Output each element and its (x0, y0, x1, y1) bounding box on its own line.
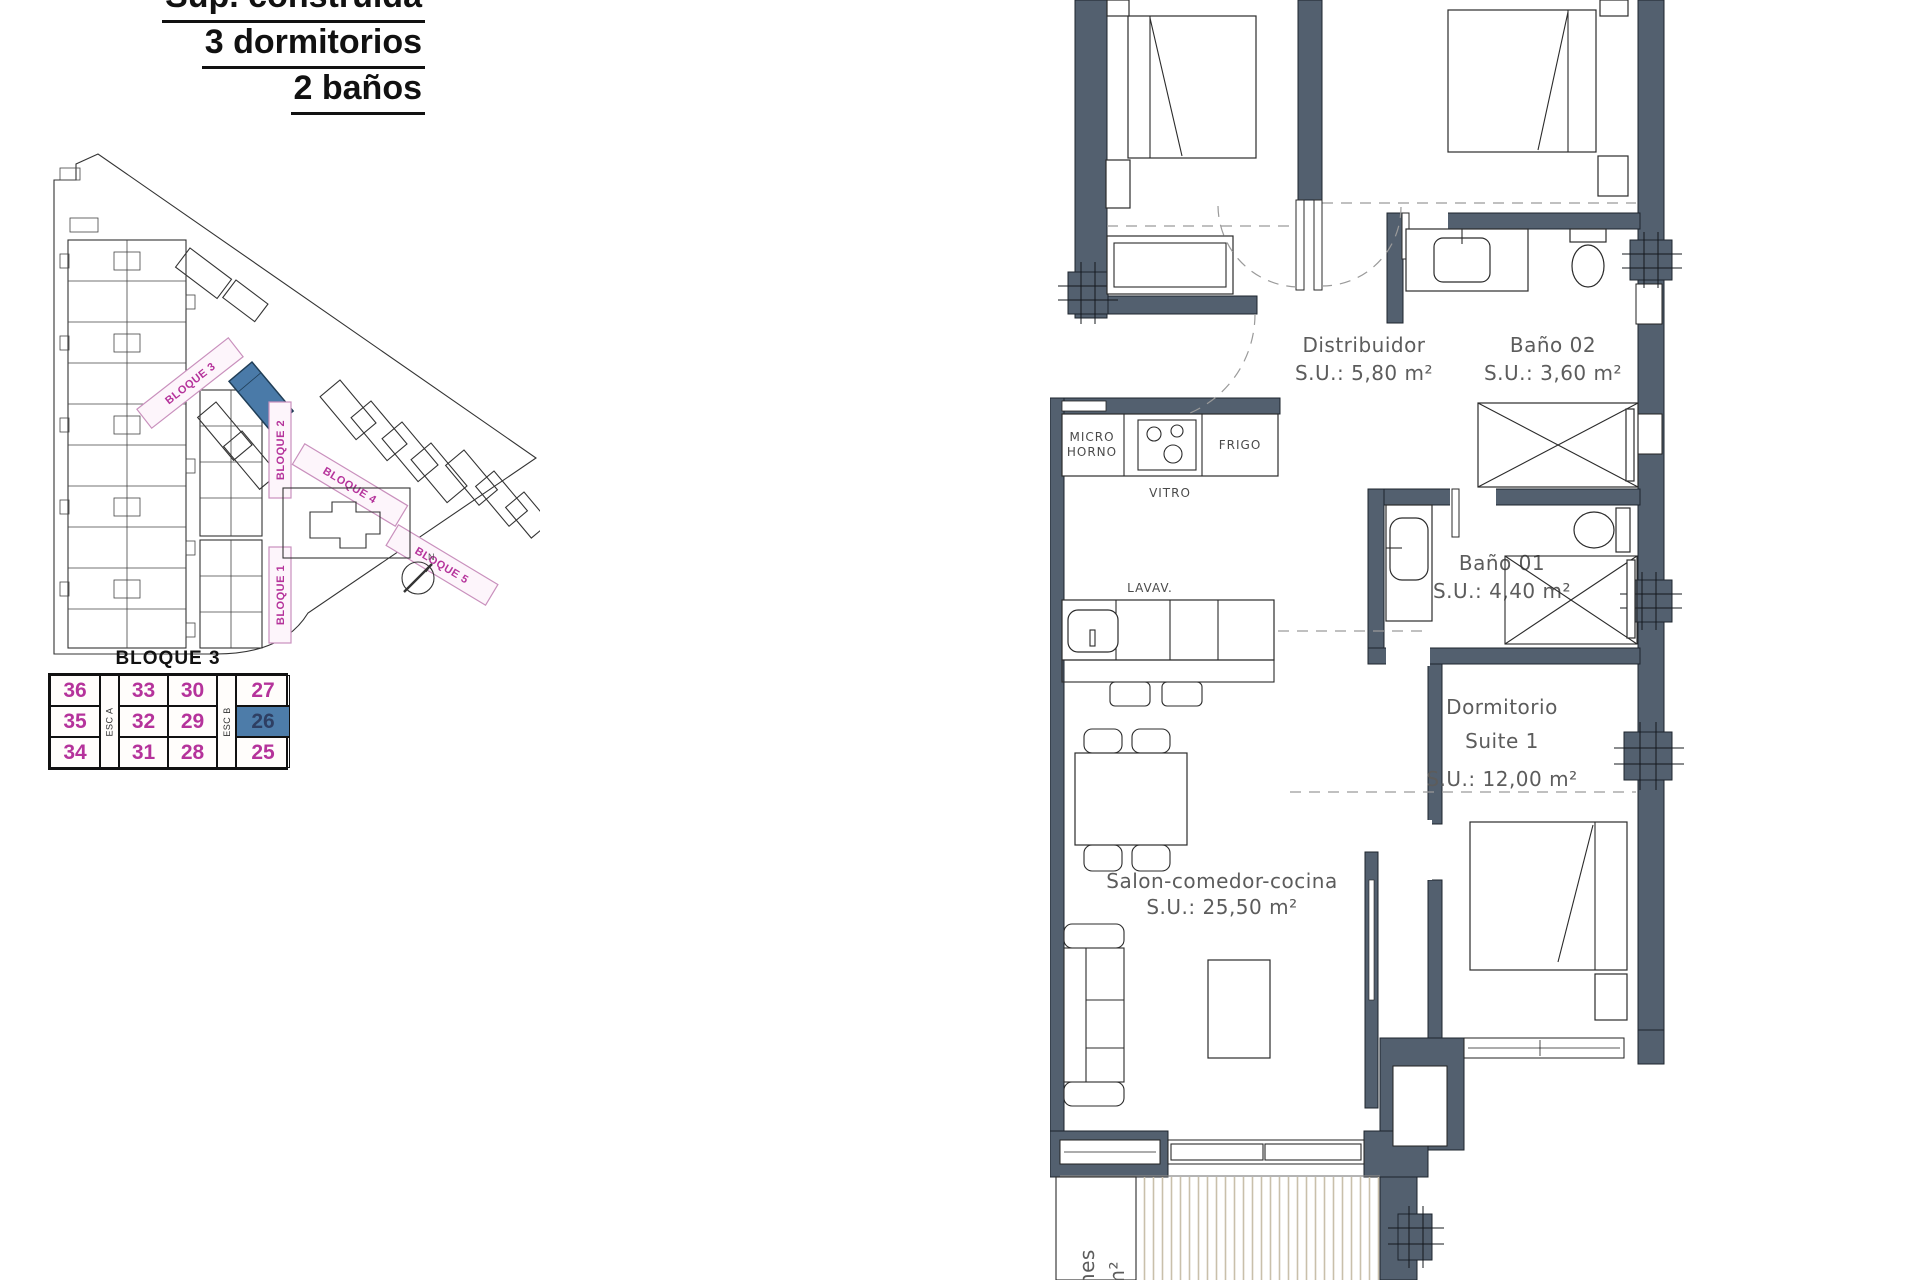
stair-b-cell: ESC B (217, 675, 236, 768)
chair-icon (1132, 845, 1170, 871)
bathroom-02: Baño 02 S.U.: 3,60 m² (1406, 229, 1638, 487)
svg-text:N: N (428, 552, 435, 562)
apartment-floor-plan: Baño 02 S.U.: 3,60 m² Distribuidor S.U.:… (1050, 0, 1870, 1280)
chair-icon (1084, 729, 1122, 753)
toilet-icon (1570, 229, 1606, 242)
rowhouses-left (60, 218, 195, 648)
block3-table: BLOQUE 3 36 ESC A 33 30 ESC B 27 35 32 2… (48, 648, 288, 770)
svg-text:BLOQUE 1: BLOQUE 1 (275, 565, 287, 625)
bedroom-a (1106, 0, 1298, 294)
nightstand-icon (1600, 0, 1628, 16)
bedroom-b (1322, 0, 1636, 203)
unit-cell-25[interactable]: 25 (236, 737, 290, 768)
kitchen-label-micro: MICRO (1069, 430, 1114, 444)
unit-cell-29[interactable]: 29 (168, 706, 217, 737)
suite-bedroom: Dormitorio Suite 1 S.U.: 12,00 m² (1290, 695, 1636, 1058)
bar-overhang (1062, 660, 1274, 682)
nightstand-icon (1107, 0, 1129, 16)
room-label-suite-1: Dormitorio (1446, 695, 1558, 719)
sink-icon (1434, 238, 1490, 282)
block3-table-grid: 36 ESC A 33 30 ESC B 27 35 32 29 26 34 3… (48, 673, 288, 770)
pillar-icon (1622, 232, 1682, 288)
room-area-instalaciones: S.U.: 2,50 m² (1105, 1261, 1129, 1280)
unit-cell-26-selected[interactable]: 26 (236, 706, 290, 737)
unit-cell-32[interactable]: 32 (119, 706, 168, 737)
kitchen-label-lavav: LAVAV. (1127, 581, 1173, 595)
room-label-bano02: Baño 02 (1510, 333, 1596, 357)
dining-table-icon (1075, 753, 1187, 845)
wardrobe-icon (1107, 236, 1233, 294)
unit-cell-31[interactable]: 31 (119, 737, 168, 768)
kitchen: MICRO HORNO FRIGO VITRO (1062, 414, 1278, 500)
nightstand-icon (1595, 974, 1627, 1020)
unit-cell-30[interactable]: 30 (168, 675, 217, 706)
pillar-icons (1058, 232, 1684, 1268)
bloque5-units (446, 450, 540, 538)
spec-bathrooms: 2 baños (291, 66, 425, 115)
room-area-suite: S.U.: 12,00 m² (1426, 767, 1577, 791)
unit-cell-36[interactable]: 36 (50, 675, 100, 706)
room-area-bano01: S.U.: 4,40 m² (1433, 579, 1571, 603)
site-plan: BLOQUE 3 BLOQUE 4 BLOQUE 5 BLOQUE 2 (40, 140, 540, 670)
chair-icon (1132, 729, 1170, 753)
unit-cell-35[interactable]: 35 (50, 706, 100, 737)
floorplan-sheet: Sup. construida 3 dormitorios 2 baños (0, 0, 1920, 1280)
room-area-distribuidor: S.U.: 5,80 m² (1295, 361, 1433, 385)
spec-bedrooms: 3 dormitorios (202, 20, 425, 69)
kitchen-label-vitro: VITRO (1149, 486, 1191, 500)
kitchen-label-horno: HORNO (1067, 445, 1117, 459)
kitchen-label-frigo: FRIGO (1219, 438, 1262, 452)
nightstand-icon (1106, 160, 1130, 208)
distribuidor: Distribuidor S.U.: 5,80 m² (1295, 333, 1433, 385)
terrace-zone: Instalaciones S.U.: 2,50 m² (1056, 1140, 1380, 1280)
room-label-instalaciones: Instalaciones (1075, 1249, 1099, 1280)
room-label-salon: Salon-comedor-cocina (1106, 869, 1337, 893)
sink-icon (1390, 518, 1428, 580)
bloque2-label: BLOQUE 2 (269, 402, 291, 498)
stool-icon (1110, 682, 1150, 706)
rowhouses-middle (200, 390, 262, 648)
chair-icon (1084, 845, 1122, 871)
toilet-icon (1616, 508, 1630, 552)
unit-cell-34[interactable]: 34 (50, 737, 100, 768)
stool-icon (1162, 682, 1202, 706)
bloque1-label: BLOQUE 1 (269, 547, 291, 643)
rowhouses-top (176, 248, 268, 322)
room-area-salon: S.U.: 25,50 m² (1146, 895, 1297, 919)
block3-table-title: BLOQUE 3 (48, 648, 288, 670)
room-label-bano01: Baño 01 (1459, 551, 1545, 575)
terrace-decking (1138, 1177, 1380, 1280)
unit-cell-33[interactable]: 33 (119, 675, 168, 706)
stair-a-cell: ESC A (100, 675, 119, 768)
bed-icon (1470, 822, 1627, 970)
room-label-distribuidor: Distribuidor (1302, 333, 1425, 357)
bathroom-01: Baño 01 S.U.: 4,40 m² (1386, 505, 1637, 644)
bed-icon (1128, 16, 1256, 158)
spec-block: Sup. construida 3 dormitorios 2 baños (95, 0, 425, 112)
bloque5-label: BLOQUE 5 (386, 525, 498, 605)
unit-cell-27[interactable]: 27 (236, 675, 290, 706)
plot-notch (60, 168, 80, 180)
unit-cell-28[interactable]: 28 (168, 737, 217, 768)
bed-icon (1448, 10, 1596, 152)
nightstand-icon (1598, 156, 1628, 196)
living-dining: Salon-comedor-cocina S.U.: 25,50 m² (1064, 729, 1338, 1106)
sofa-icon (1064, 924, 1124, 1106)
coffee-table-icon (1208, 960, 1270, 1058)
pillar-icon (1614, 722, 1684, 790)
room-area-bano02: S.U.: 3,60 m² (1484, 361, 1622, 385)
svg-text:BLOQUE 2: BLOQUE 2 (275, 420, 287, 480)
room-label-suite-2: Suite 1 (1465, 729, 1539, 753)
